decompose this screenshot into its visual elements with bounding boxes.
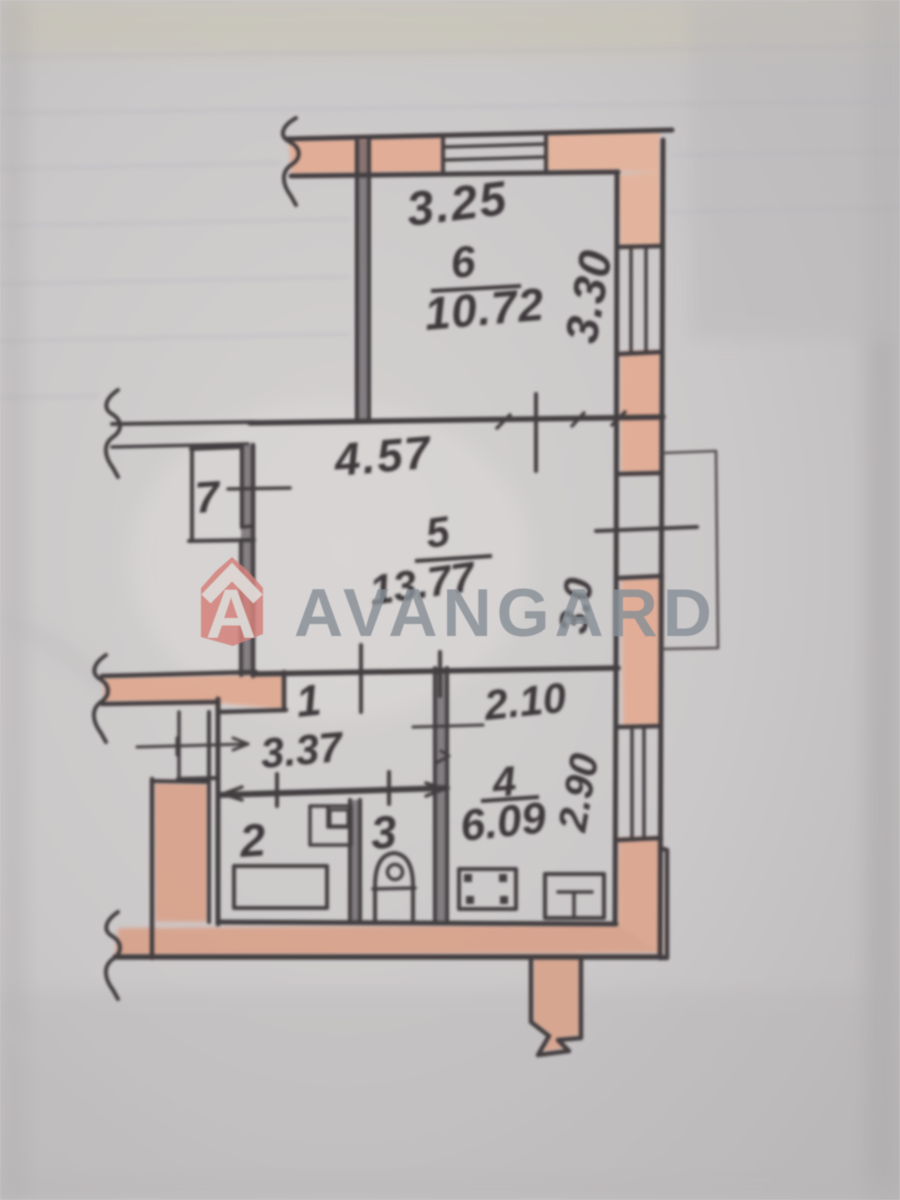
svg-text:4.57: 4.57 [331,426,434,486]
svg-text:10.72: 10.72 [422,278,546,340]
svg-text:6.09: 6.09 [458,793,549,851]
svg-text:1: 1 [294,676,323,727]
svg-text:2.10: 2.10 [481,674,568,729]
svg-text:6: 6 [449,237,478,288]
svg-text:3: 3 [369,805,399,859]
svg-text:AVANGARD: AVANGARD [294,575,717,651]
svg-text:2: 2 [237,813,268,867]
svg-text:A: A [206,575,257,653]
svg-text:3.37: 3.37 [259,723,346,777]
